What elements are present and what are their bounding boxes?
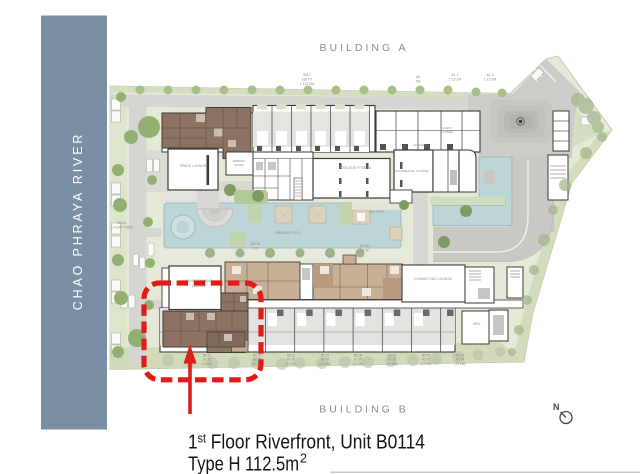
- svg-text:1st Floor Riverfront, Unit B01: 1st Floor Riverfront, Unit B0114: [188, 431, 425, 454]
- svg-text:Type H 112.5m: Type H 112.5m: [188, 453, 299, 474]
- svg-text:ALCOVE C: ALCOVE C: [413, 143, 427, 147]
- svg-text:SM 2: SM 2: [303, 73, 311, 77]
- svg-text:SM 10: SM 10: [250, 242, 260, 246]
- svg-text:BUILDING B: BUILDING B: [319, 404, 409, 416]
- svg-text:1 15 2M: 1 15 2M: [484, 78, 496, 82]
- svg-text:LOUNGE: LOUNGE: [441, 130, 453, 134]
- svg-text:BUILDING A: BUILDING A: [320, 42, 409, 54]
- svg-text:POOLSIDE FITNESS: POOLSIDE FITNESS: [339, 166, 372, 170]
- svg-text:BACK: BACK: [117, 221, 127, 225]
- svg-text:(13 5M): (13 5M): [421, 362, 432, 366]
- svg-text:N: N: [553, 402, 560, 412]
- svg-text:MRL: MRL: [473, 322, 480, 326]
- svg-text:A1 2: A1 2: [452, 73, 459, 77]
- svg-text:RESIDENTIAL LOUNGE: RESIDENTIAL LOUNGE: [395, 169, 428, 173]
- svg-text:CONNECTING LOUNGE: CONNECTING LOUNGE: [414, 277, 453, 281]
- svg-text:(13 5M): (13 5M): [202, 362, 213, 366]
- svg-text:(13 5M): (13 5M): [455, 362, 466, 366]
- svg-text:B0 0D: B0 0D: [360, 244, 370, 248]
- svg-text:(13 5M): (13 5M): [353, 362, 364, 366]
- svg-text:1 112 SM: 1 112 SM: [300, 82, 314, 86]
- svg-text:(13 5M): (13 5M): [320, 362, 331, 366]
- svg-text:1 15 2M: 1 15 2M: [449, 78, 461, 82]
- svg-text:183 FT: 183 FT: [302, 78, 313, 82]
- svg-text:WINDING POOL: WINDING POOL: [275, 231, 301, 235]
- svg-text:KID POOL: KID POOL: [369, 210, 385, 214]
- svg-text:ROOM: ROOM: [235, 163, 244, 167]
- svg-text:5 2: 5 2: [253, 247, 258, 251]
- svg-text:2: 2: [300, 452, 307, 466]
- svg-text:4M: 4M: [416, 80, 421, 84]
- svg-text:L2 4F: L2 4F: [361, 249, 370, 253]
- svg-text:A1 3: A1 3: [487, 73, 494, 77]
- svg-text:(13 5M): (13 5M): [286, 362, 297, 366]
- svg-text:SPACE LOUNGE: SPACE LOUNGE: [180, 164, 207, 168]
- svg-text:A0: A0: [416, 75, 420, 79]
- svg-text:COURT YARD: COURT YARD: [111, 226, 134, 230]
- svg-text:CHAO PHRAYA RIVER: CHAO PHRAYA RIVER: [71, 132, 85, 311]
- svg-text:(13 5M): (13 5M): [387, 362, 398, 366]
